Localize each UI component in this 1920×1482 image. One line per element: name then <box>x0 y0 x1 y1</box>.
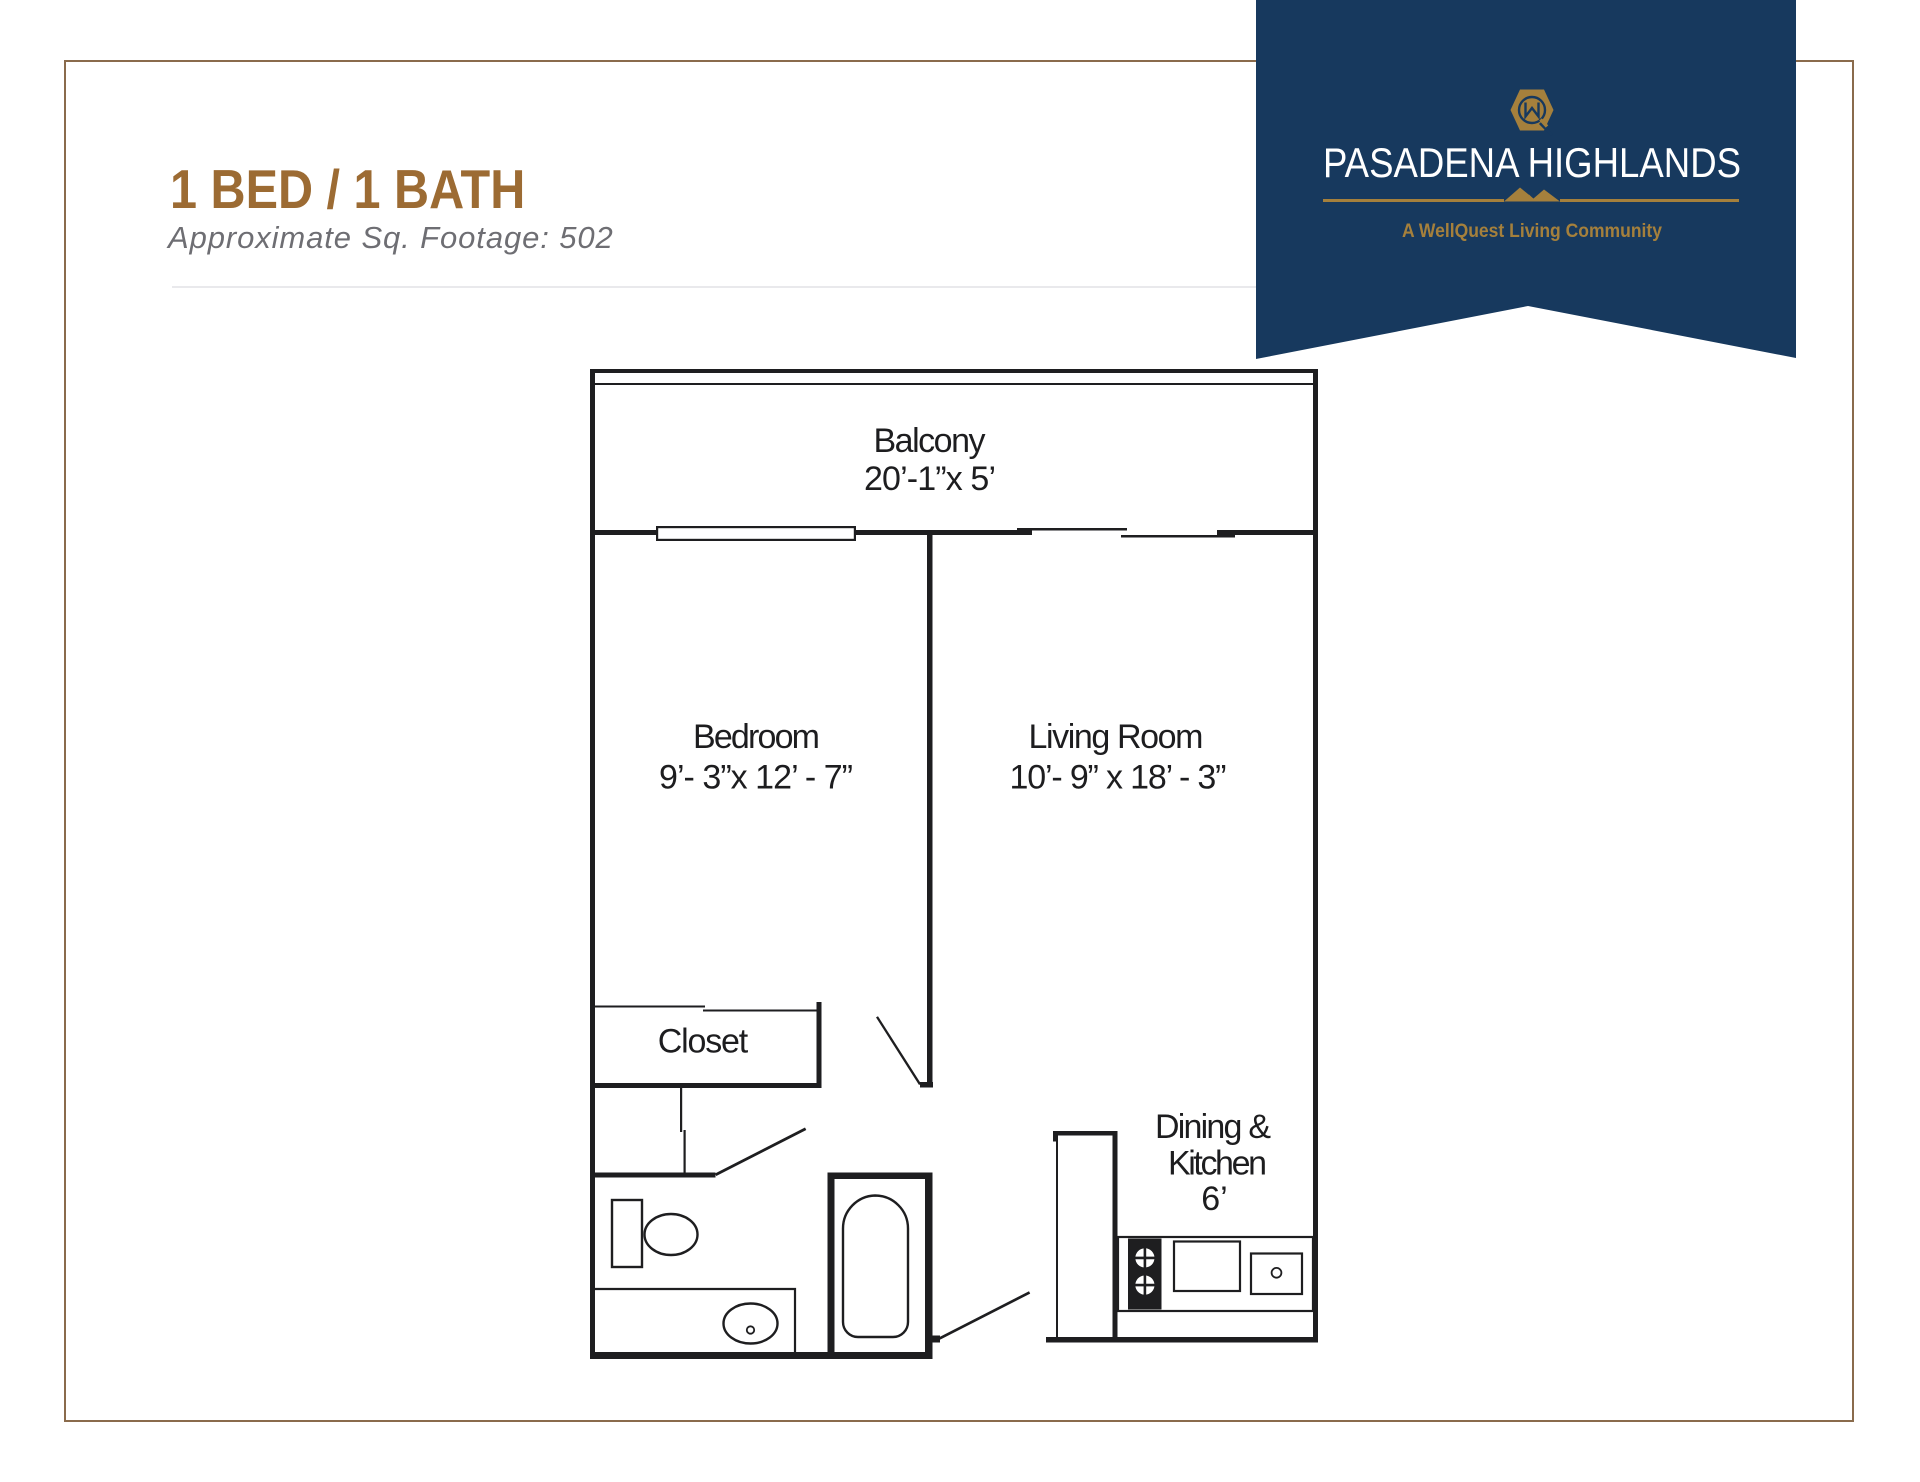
svg-text:10’- 9” x 18’ - 3”: 10’- 9” x 18’ - 3” <box>1010 759 1227 797</box>
svg-text:Bedroom: Bedroom <box>693 718 820 756</box>
svg-text:Living Room: Living Room <box>1029 718 1204 756</box>
svg-text:6’: 6’ <box>1201 1180 1227 1218</box>
svg-text:20’-1”x 5’: 20’-1”x 5’ <box>864 460 996 498</box>
svg-text:9’- 3”x 12’ - 7”: 9’- 3”x 12’ - 7” <box>659 759 853 797</box>
svg-text:Closet: Closet <box>658 1023 749 1061</box>
svg-text:Dining &: Dining & <box>1155 1108 1271 1146</box>
svg-text:Balcony: Balcony <box>874 422 986 460</box>
svg-text:Kitchen: Kitchen <box>1168 1145 1267 1183</box>
